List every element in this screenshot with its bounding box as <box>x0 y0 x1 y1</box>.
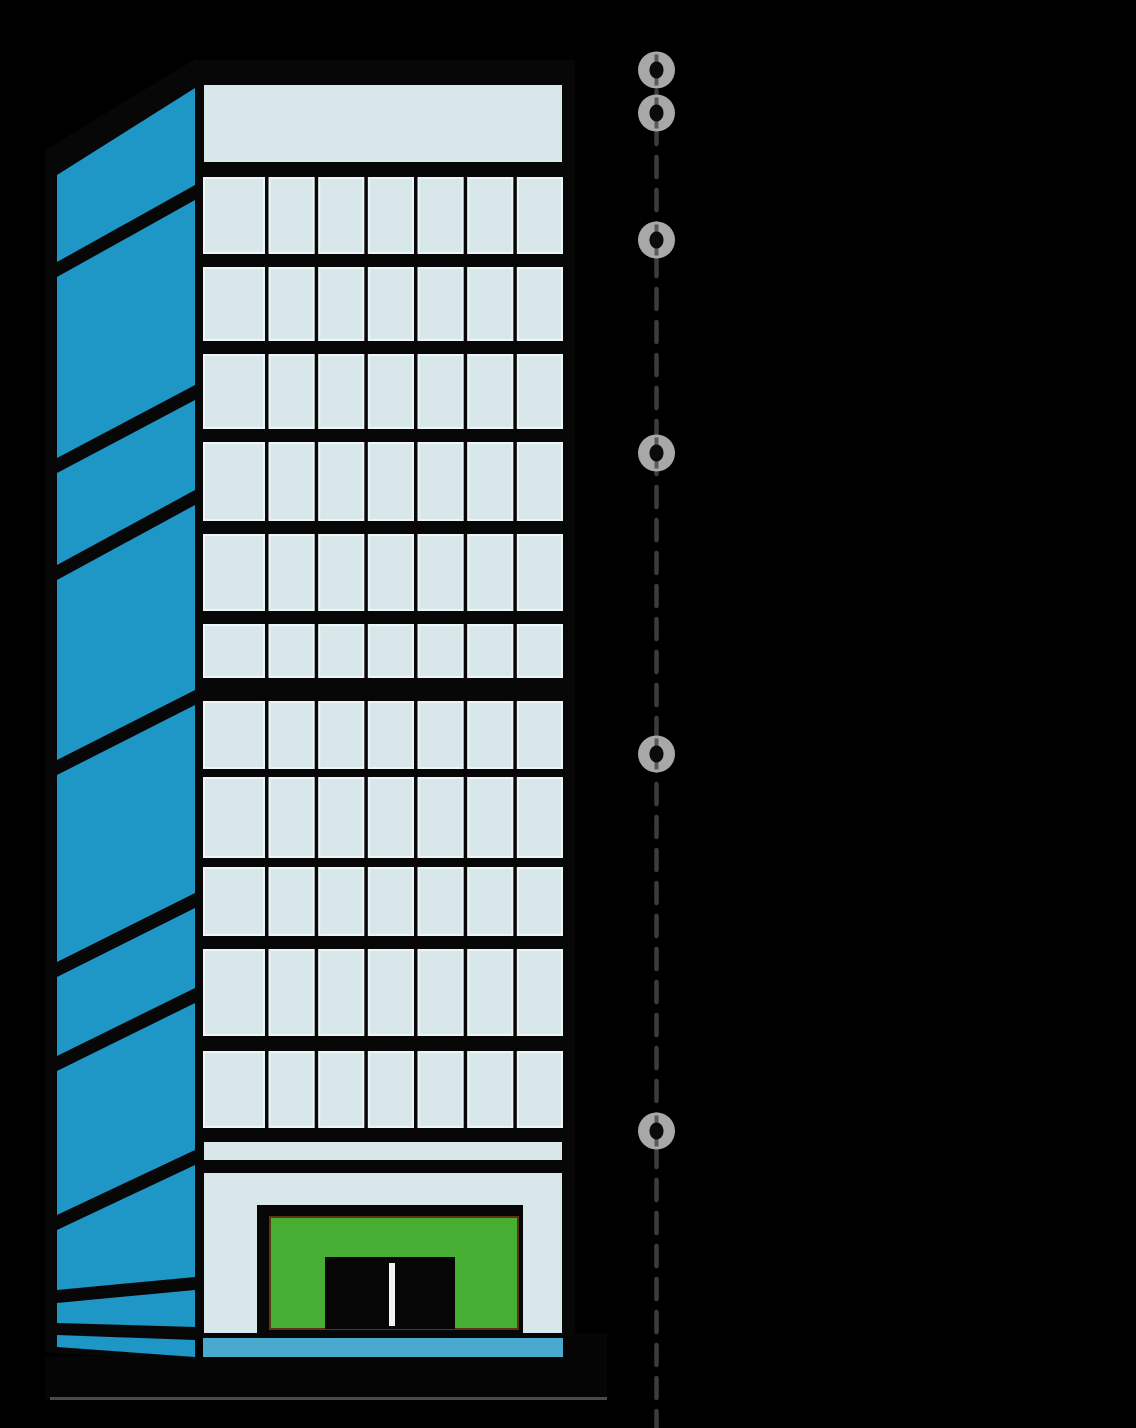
window <box>419 535 463 610</box>
window <box>204 355 264 428</box>
marker-node-dot-icon <box>650 746 664 763</box>
window <box>468 535 512 610</box>
window <box>270 625 314 677</box>
window <box>319 702 363 768</box>
illustration-canvas <box>0 0 1136 1428</box>
window-row <box>204 702 562 768</box>
window <box>419 625 463 677</box>
window <box>468 355 512 428</box>
building-illustration <box>45 58 607 1400</box>
window <box>270 868 314 935</box>
window <box>518 950 562 1035</box>
window <box>204 1052 264 1127</box>
window <box>319 778 363 857</box>
window <box>204 625 264 677</box>
window <box>270 1052 314 1127</box>
window <box>369 268 413 340</box>
window <box>369 702 413 768</box>
window <box>518 625 562 677</box>
window <box>319 355 363 428</box>
ground-bar <box>45 1357 607 1399</box>
marker-guide-line-group <box>638 52 675 1428</box>
marker-node[interactable] <box>638 736 675 773</box>
window <box>270 535 314 610</box>
window <box>468 702 512 768</box>
window <box>419 702 463 768</box>
window <box>319 1052 363 1127</box>
window <box>419 1052 463 1127</box>
window <box>468 868 512 935</box>
window <box>518 535 562 610</box>
window <box>518 868 562 935</box>
window-row <box>204 535 562 610</box>
window <box>518 1052 562 1127</box>
marker-node-dot-icon <box>650 445 664 462</box>
window <box>270 778 314 857</box>
window <box>419 950 463 1035</box>
window <box>204 778 264 857</box>
window <box>369 535 413 610</box>
window <box>319 443 363 520</box>
window <box>468 625 512 677</box>
marker-node-dot-icon <box>650 62 664 79</box>
window <box>518 178 562 253</box>
window-row <box>204 868 562 935</box>
window <box>369 625 413 677</box>
marker-node[interactable] <box>638 1113 675 1150</box>
window <box>518 443 562 520</box>
window <box>468 443 512 520</box>
window <box>270 178 314 253</box>
window <box>419 443 463 520</box>
window <box>204 702 264 768</box>
window <box>204 868 264 935</box>
window <box>319 625 363 677</box>
window <box>518 268 562 340</box>
window <box>270 443 314 520</box>
marker-node[interactable] <box>638 95 675 132</box>
window <box>319 535 363 610</box>
window <box>369 355 413 428</box>
window <box>369 778 413 857</box>
window-row <box>204 625 562 677</box>
window-row <box>204 178 562 253</box>
window <box>468 950 512 1035</box>
window <box>518 355 562 428</box>
marker-node[interactable] <box>638 52 675 89</box>
window <box>204 178 264 253</box>
window-row <box>204 950 562 1035</box>
building-and-markers-scene <box>0 0 1136 1428</box>
window <box>204 535 264 610</box>
window-row <box>204 355 562 428</box>
window <box>204 443 264 520</box>
window-row <box>204 778 562 857</box>
window <box>369 178 413 253</box>
window <box>419 778 463 857</box>
window <box>518 702 562 768</box>
sidewalk-strip <box>203 1338 567 1357</box>
window <box>319 268 363 340</box>
window <box>270 268 314 340</box>
window <box>369 1052 413 1127</box>
window <box>204 268 264 340</box>
ground-bottom-edge-line <box>50 1397 607 1400</box>
window <box>319 868 363 935</box>
window <box>419 355 463 428</box>
mezzanine-band <box>204 1142 562 1160</box>
window-row <box>204 1052 562 1127</box>
window <box>204 950 264 1035</box>
window <box>369 443 413 520</box>
marker-node-dot-icon <box>650 232 664 249</box>
door-divider-line <box>389 1263 395 1326</box>
window <box>419 868 463 935</box>
window <box>518 778 562 857</box>
window-row <box>204 268 562 340</box>
window <box>468 178 512 253</box>
window-row <box>204 443 562 520</box>
window <box>419 268 463 340</box>
window <box>319 178 363 253</box>
marker-node-dot-icon <box>650 105 664 122</box>
window <box>319 950 363 1035</box>
window <box>270 355 314 428</box>
window <box>369 868 413 935</box>
window <box>419 178 463 253</box>
window <box>270 950 314 1035</box>
window <box>468 778 512 857</box>
marker-node-dot-icon <box>650 1123 664 1140</box>
marker-node[interactable] <box>638 222 675 259</box>
window <box>369 950 413 1035</box>
top-floor-band <box>204 85 562 162</box>
window <box>468 1052 512 1127</box>
window <box>468 268 512 340</box>
marker-node[interactable] <box>638 435 675 472</box>
window <box>270 702 314 768</box>
